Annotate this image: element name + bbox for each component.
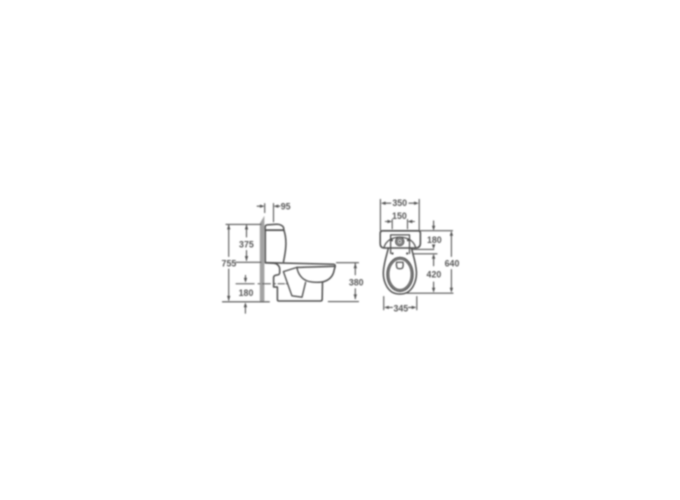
svg-text:180: 180 [427, 235, 442, 245]
svg-text:375: 375 [239, 240, 254, 250]
svg-text:350: 350 [392, 198, 407, 208]
svg-text:640: 640 [445, 258, 460, 268]
svg-text:150: 150 [392, 211, 407, 221]
svg-text:180: 180 [239, 288, 254, 298]
svg-text:380: 380 [349, 277, 364, 287]
svg-text:420: 420 [427, 270, 442, 280]
svg-text:345: 345 [393, 303, 408, 313]
svg-text:755: 755 [222, 259, 237, 269]
svg-text:95: 95 [281, 202, 291, 212]
